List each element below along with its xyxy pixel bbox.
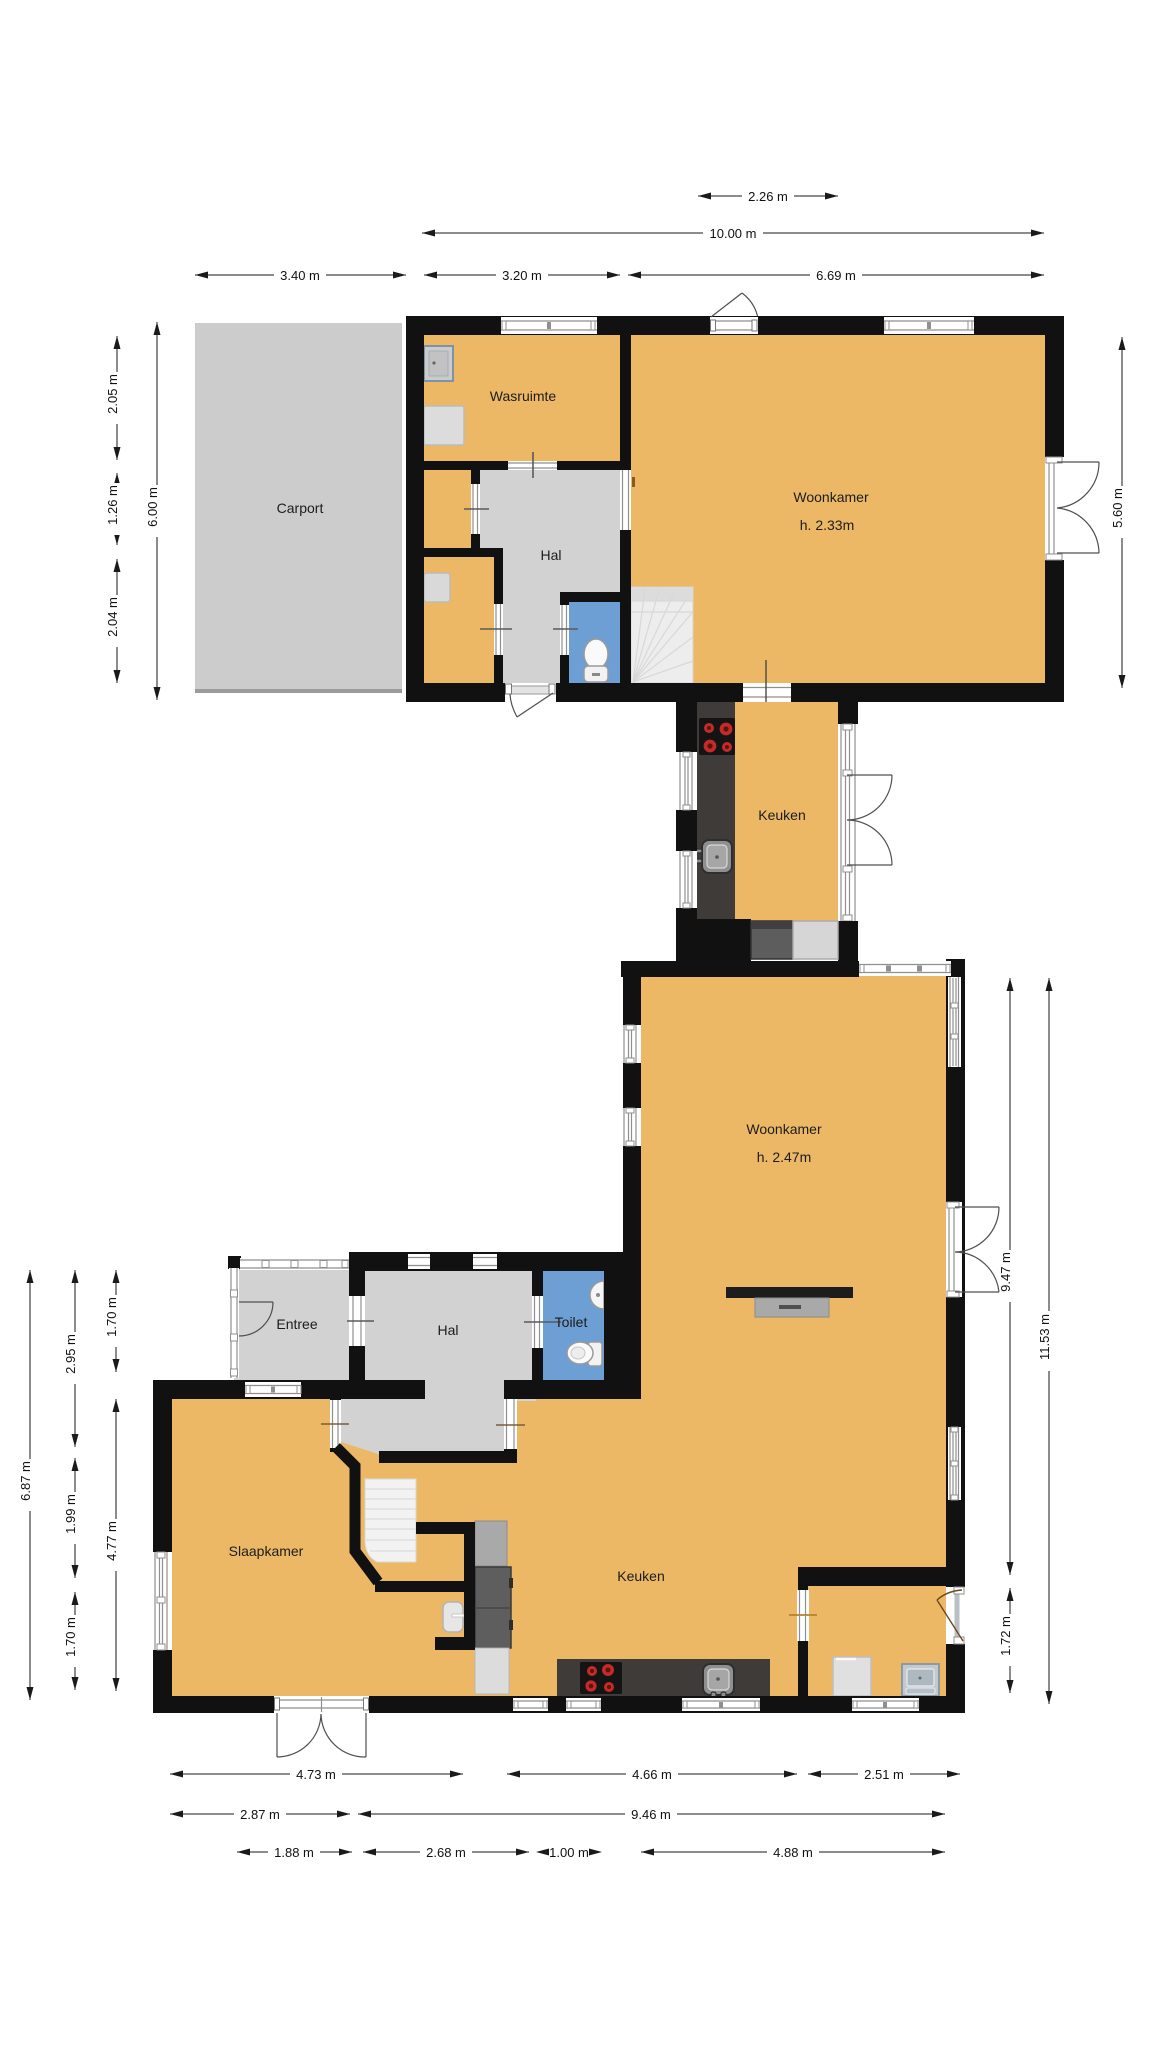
svg-text:6.00 m: 6.00 m xyxy=(145,487,160,527)
svg-text:4.73 m: 4.73 m xyxy=(296,1767,336,1782)
svg-text:9.46 m: 9.46 m xyxy=(631,1807,671,1822)
svg-text:2.04 m: 2.04 m xyxy=(105,597,120,637)
svg-text:2.68 m: 2.68 m xyxy=(426,1845,466,1860)
svg-text:Keuken: Keuken xyxy=(758,807,805,823)
svg-text:1.00 m: 1.00 m xyxy=(549,1845,589,1860)
svg-text:Slaapkamer: Slaapkamer xyxy=(229,1543,304,1559)
svg-text:3.40 m: 3.40 m xyxy=(280,268,320,283)
svg-text:Woonkamer: Woonkamer xyxy=(793,489,869,505)
svg-text:6.69 m: 6.69 m xyxy=(816,268,856,283)
svg-text:1.70 m: 1.70 m xyxy=(104,1297,119,1337)
svg-text:Hal: Hal xyxy=(437,1322,458,1338)
svg-text:Wasruimte: Wasruimte xyxy=(490,388,557,404)
svg-text:h. 2.33m: h. 2.33m xyxy=(800,517,854,533)
svg-text:10.00 m: 10.00 m xyxy=(710,226,757,241)
svg-text:4.77 m: 4.77 m xyxy=(104,1521,119,1561)
svg-text:6.87 m: 6.87 m xyxy=(18,1461,33,1501)
svg-text:1.70 m: 1.70 m xyxy=(63,1617,78,1657)
svg-text:9.47 m: 9.47 m xyxy=(998,1252,1013,1292)
svg-text:2.51 m: 2.51 m xyxy=(864,1767,904,1782)
svg-text:1.99 m: 1.99 m xyxy=(63,1494,78,1534)
svg-text:2.05 m: 2.05 m xyxy=(105,374,120,414)
svg-text:4.88 m: 4.88 m xyxy=(773,1845,813,1860)
svg-text:Toilet: Toilet xyxy=(555,1314,588,1330)
svg-text:11.53 m: 11.53 m xyxy=(1037,1314,1052,1360)
svg-text:Hal: Hal xyxy=(540,547,561,563)
svg-text:5.60 m: 5.60 m xyxy=(1110,488,1125,528)
svg-text:4.66 m: 4.66 m xyxy=(632,1767,672,1782)
svg-text:h. 2.47m: h. 2.47m xyxy=(757,1149,811,1165)
svg-text:2.95 m: 2.95 m xyxy=(63,1334,78,1374)
svg-text:1.72 m: 1.72 m xyxy=(998,1616,1013,1656)
svg-text:1.88 m: 1.88 m xyxy=(274,1845,314,1860)
svg-text:Entree: Entree xyxy=(276,1316,317,1332)
svg-text:3.20 m: 3.20 m xyxy=(502,268,542,283)
svg-text:Carport: Carport xyxy=(277,500,324,516)
svg-text:2.26 m: 2.26 m xyxy=(748,189,788,204)
svg-text:1.26 m: 1.26 m xyxy=(105,485,120,525)
svg-text:2.87 m: 2.87 m xyxy=(240,1807,280,1822)
svg-text:Keuken: Keuken xyxy=(617,1568,664,1584)
svg-text:Woonkamer: Woonkamer xyxy=(746,1121,822,1137)
